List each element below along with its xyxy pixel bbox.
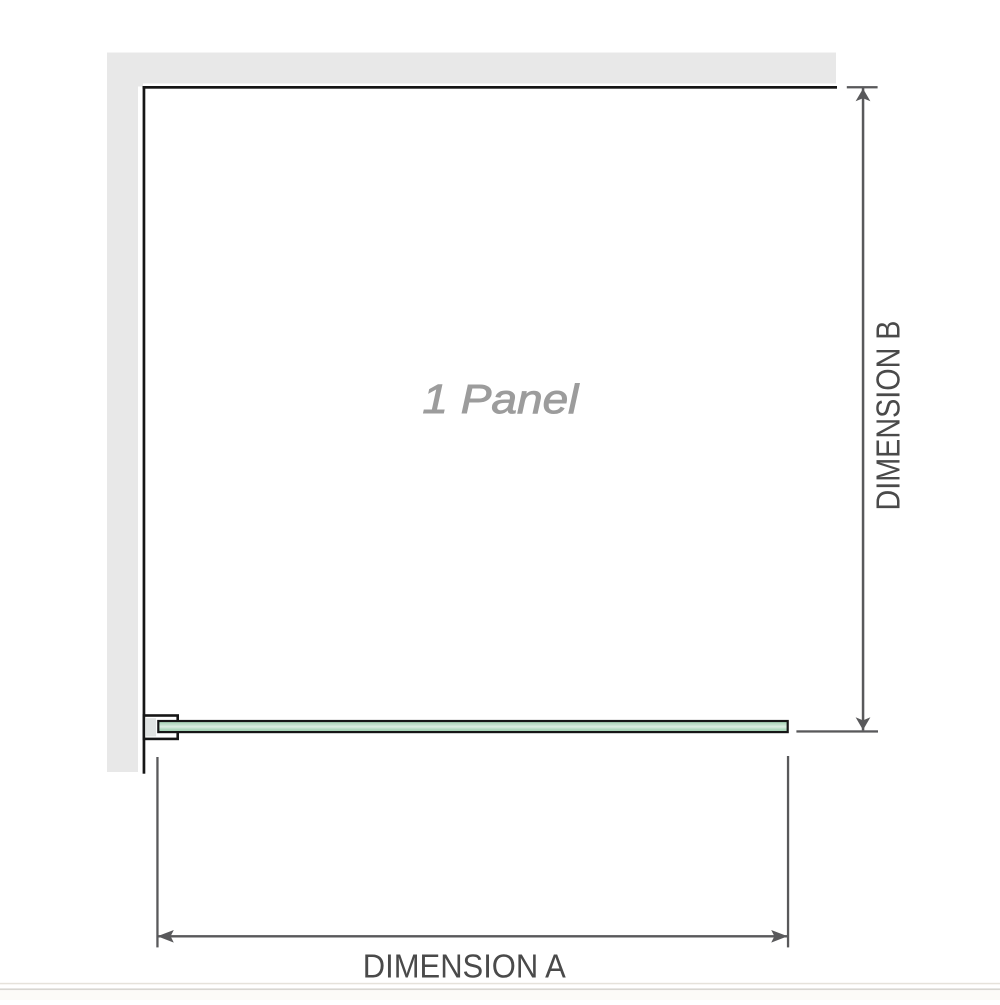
svg-text:DIMENSION B: DIMENSION B: [870, 320, 907, 510]
svg-text:1 Panel: 1 Panel: [422, 376, 579, 422]
svg-text:DIMENSION A: DIMENSION A: [363, 948, 566, 985]
